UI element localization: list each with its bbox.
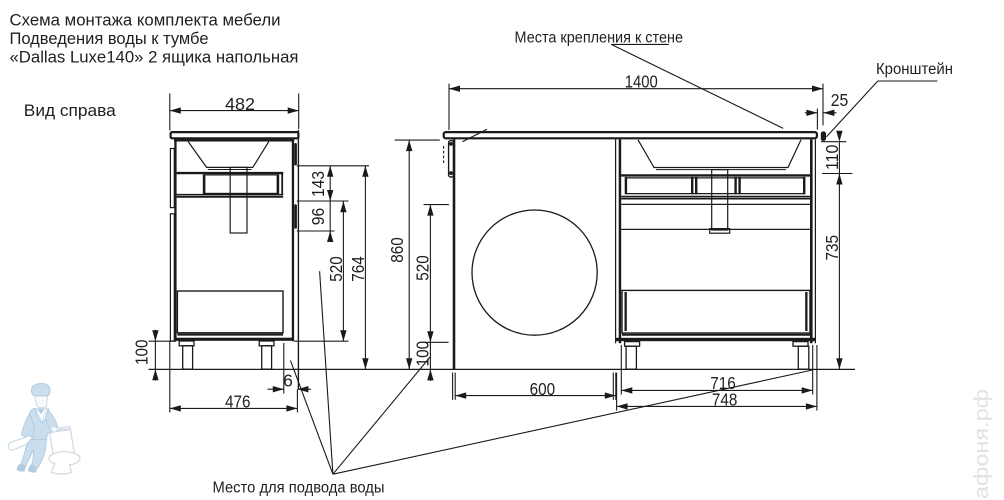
svg-text:6: 6 [283, 370, 293, 390]
svg-text:520: 520 [413, 255, 433, 281]
svg-text:600: 600 [530, 379, 556, 399]
svg-text:143: 143 [308, 171, 328, 197]
svg-text:96: 96 [308, 208, 328, 226]
svg-text:афоня.рф: афоня.рф [971, 389, 993, 499]
svg-text:Вид справа: Вид справа [24, 102, 117, 120]
svg-text:1400: 1400 [625, 71, 658, 91]
svg-text:100: 100 [413, 341, 433, 367]
svg-text:482: 482 [225, 94, 255, 114]
svg-text:Места крепления к стене: Места крепления к стене [515, 29, 684, 46]
svg-text:«Dallas Luxe140» 2 ящика напол: «Dallas Luxe140» 2 ящика напольная [10, 47, 299, 66]
svg-text:Подведения воды к тумбе: Подведения воды к тумбе [10, 29, 209, 48]
svg-text:476: 476 [225, 391, 251, 411]
svg-text:520: 520 [326, 256, 346, 282]
svg-text:Кронштейн: Кронштейн [876, 61, 953, 78]
svg-text:110: 110 [822, 144, 842, 170]
svg-text:860: 860 [387, 237, 407, 263]
svg-text:Схема монтажа комплекта мебели: Схема монтажа комплекта мебели [10, 10, 281, 29]
svg-text:735: 735 [822, 235, 842, 260]
svg-text:25: 25 [831, 90, 849, 110]
svg-text:Место для подвода воды: Место для подвода воды [213, 480, 385, 497]
svg-text:100: 100 [132, 339, 152, 365]
svg-text:748: 748 [712, 389, 738, 409]
svg-text:764: 764 [348, 256, 368, 282]
